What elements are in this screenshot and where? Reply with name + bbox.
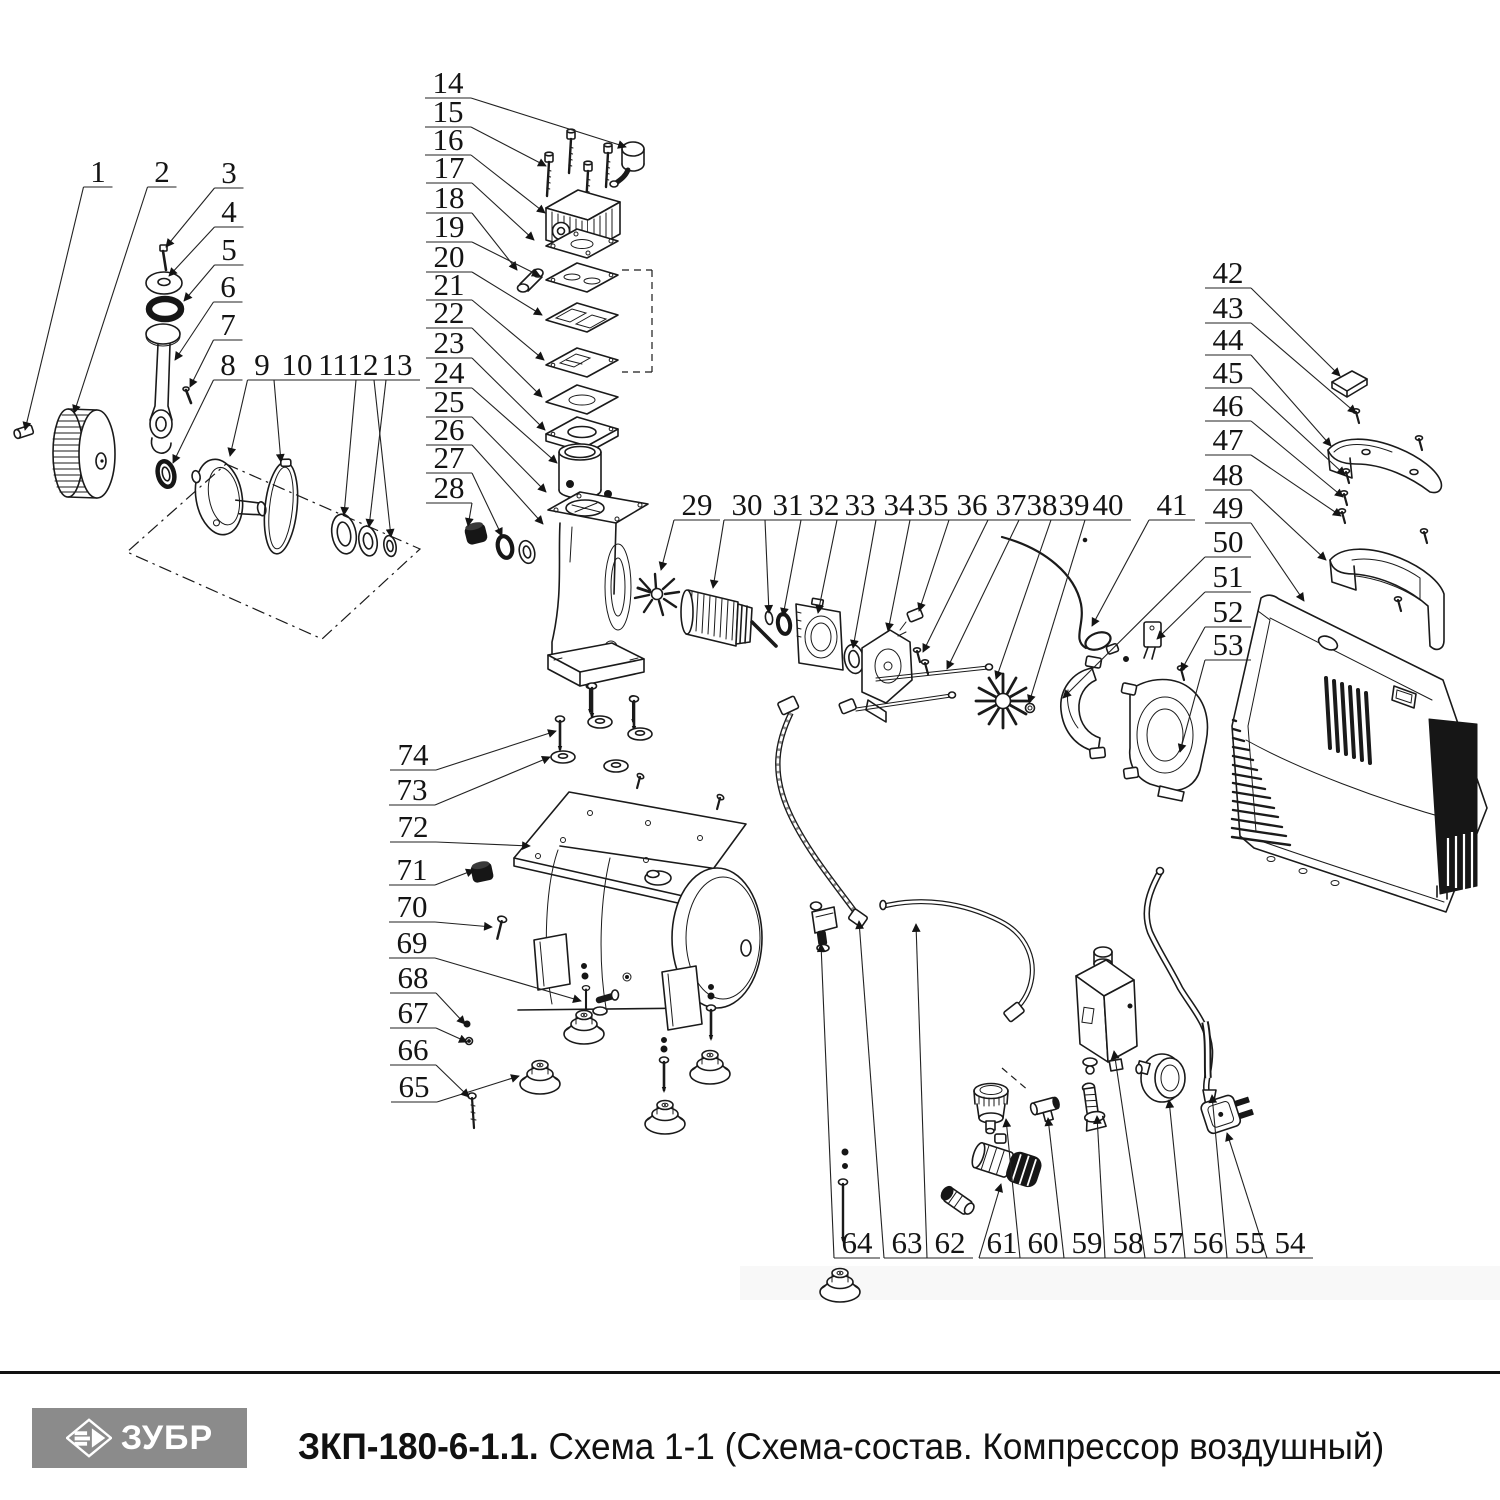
part-safety-valve-64 [811,902,838,952]
part-handle-top-44 [1328,439,1441,492]
callout-12: 12 [340,347,386,527]
part-air-filter-14 [610,142,644,187]
part-gasket-20 [546,303,618,332]
part-screw-52 [1178,666,1185,680]
part-plate-42 [1332,371,1367,397]
part-crankcase [548,481,648,687]
svg-text:71: 71 [397,852,428,887]
part-sleeve-8 [155,459,177,488]
exploded-diagram: 1234567891011121314151617181920212223242… [0,0,1500,1371]
svg-text:7: 7 [220,307,236,342]
part-washer-27 [496,535,515,560]
svg-text:62: 62 [935,1225,966,1260]
svg-text:28: 28 [434,470,465,505]
svg-text:42: 42 [1213,255,1244,290]
svg-text:39: 39 [1059,487,1090,522]
svg-text:13: 13 [382,347,413,382]
svg-text:63: 63 [892,1225,923,1260]
svg-text:61: 61 [987,1225,1018,1260]
part-stator-33 [796,598,843,670]
svg-text:36: 36 [957,487,988,522]
schematic-page: 1234567891011121314151617181920212223242… [0,0,1500,1500]
part-cowl-left-50 [1061,656,1106,759]
callout-70: 70 [389,889,492,927]
svg-text:40: 40 [1093,487,1124,522]
svg-text:58: 58 [1113,1225,1144,1260]
brand-name: ЗУБР [121,1419,213,1458]
svg-text:43: 43 [1213,290,1244,325]
part-washer-31 [764,611,773,625]
part-pressure-switch-57 [1076,947,1137,1074]
part-fan-29 [635,574,679,615]
callout-61: 61 [979,1184,1025,1260]
callout-9: 9 [230,347,277,456]
part-cap-71 [470,860,494,883]
part-fan-39 [976,674,1030,728]
part-valve-plate-19 [546,263,618,292]
part-drain-69 [582,964,619,1016]
part-valve-plate-21 [546,348,618,377]
zubr-logo: ЗУБР [32,1408,247,1468]
svg-text:41: 41 [1157,487,1188,522]
svg-text:68: 68 [398,960,429,995]
svg-text:34: 34 [884,487,916,522]
svg-text:53: 53 [1213,627,1244,662]
svg-text:44: 44 [1213,322,1245,357]
callout-74: 74 [390,731,556,772]
zubr-logo-icon [66,1418,112,1458]
part-ring-32 [776,613,791,635]
part-feet-65 [520,985,860,1303]
part-hose-63 [777,696,868,928]
svg-text:49: 49 [1213,490,1244,525]
part-grommet-28 [464,520,488,545]
part-piston-rod-6 [146,324,180,453]
svg-text:38: 38 [1027,487,1058,522]
part-key-pin [13,425,34,439]
part-housing-shroud-49 [1232,595,1487,912]
svg-text:12: 12 [348,347,379,382]
svg-text:57: 57 [1153,1225,1184,1260]
svg-text:47: 47 [1213,422,1244,457]
callout-29: 29 [661,487,720,570]
part-nut-40 [1026,704,1035,713]
part-gauge-56 [1136,1054,1185,1102]
callout-65: 65 [391,1069,519,1104]
model-number: ЗКП-180-6-1.1. [298,1426,539,1467]
part-cylinder-sleeve-24 [559,444,601,498]
drawing-caption: ЗКП-180-6-1.1. Схема 1-1 (Схема-состав. … [298,1426,1384,1468]
svg-text:64: 64 [842,1225,874,1260]
part-belt-10 [260,457,302,555]
part-screws-37 [914,648,929,674]
callout-30: 30 [713,487,770,588]
part-tee-fitting-59 [1029,1096,1062,1124]
svg-text:6: 6 [220,269,236,304]
svg-text:11: 11 [318,347,348,382]
part-fitting-18 [518,269,544,292]
svg-text:60: 60 [1028,1225,1059,1260]
part-coupler-cup-60 [974,1084,1008,1134]
svg-text:46: 46 [1213,388,1244,423]
svg-text:33: 33 [845,487,876,522]
svg-text:30: 30 [732,487,763,522]
svg-text:45: 45 [1213,355,1244,390]
svg-text:59: 59 [1072,1225,1103,1260]
svg-text:67: 67 [398,995,429,1030]
footer-separator [0,1371,1500,1374]
svg-text:32: 32 [809,487,840,522]
part-seal-26 [517,539,537,565]
scheme-title: Схема 1-1 (Схема-состав. Компрессор возд… [539,1426,1385,1467]
callout-1: 1 [25,154,113,430]
part-fasteners-66-68 [464,1021,476,1128]
callout-71: 71 [389,852,474,887]
svg-text:70: 70 [397,889,428,924]
part-outlet-tube-62 [880,901,1032,1092]
callout-58: 58 [1097,1116,1151,1260]
svg-text:35: 35 [918,487,949,522]
part-screw-3 [160,245,167,270]
svg-text:1: 1 [90,154,106,189]
part-gasket-22 [546,385,618,414]
svg-text:72: 72 [398,809,429,844]
svg-text:5: 5 [221,232,237,267]
part-capacitor-wire-41 [1002,537,1119,654]
svg-text:65: 65 [399,1069,430,1104]
part-washer-4 [146,272,182,294]
svg-text:52: 52 [1213,594,1244,629]
svg-text:8: 8 [220,347,236,382]
valve-group-bracket [622,270,652,372]
callout-72: 72 [390,809,530,846]
part-screw-70 [493,915,507,939]
svg-text:74: 74 [398,737,430,772]
svg-text:9: 9 [254,347,270,382]
svg-text:31: 31 [773,487,804,522]
svg-text:3: 3 [221,155,237,190]
svg-text:69: 69 [397,925,428,960]
svg-text:48: 48 [1213,457,1244,492]
part-elbow-fitting [938,1184,976,1217]
svg-text:56: 56 [1193,1225,1224,1260]
svg-text:73: 73 [397,772,428,807]
svg-text:54: 54 [1275,1225,1307,1260]
part-end-bracket-35 [862,630,912,722]
part-rotor-30 [681,590,776,646]
svg-text:51: 51 [1213,559,1244,594]
part-bearing-11 [329,512,360,556]
svg-text:29: 29 [682,487,713,522]
svg-text:10: 10 [282,347,313,382]
part-switch-51 [1124,622,1162,662]
part-seal-ring-5 [149,299,181,319]
part-piston-assembly [146,245,191,453]
callout-63: 63 [859,921,930,1260]
svg-text:37: 37 [996,487,1027,522]
svg-text:4: 4 [221,194,237,229]
callout-28: 28 [426,470,472,526]
svg-text:66: 66 [398,1032,429,1067]
svg-text:2: 2 [154,154,170,189]
part-flywheel-pulley [53,409,115,498]
part-relief-bolt-58 [1080,1082,1106,1131]
svg-text:55: 55 [1235,1225,1266,1260]
callout-10: 10 [274,347,320,462]
callout-13: 13 [374,347,420,537]
svg-text:50: 50 [1213,524,1244,559]
callout-64: 64 [821,944,880,1260]
part-pin-7 [183,387,191,403]
callout-31: 31 [765,487,811,613]
